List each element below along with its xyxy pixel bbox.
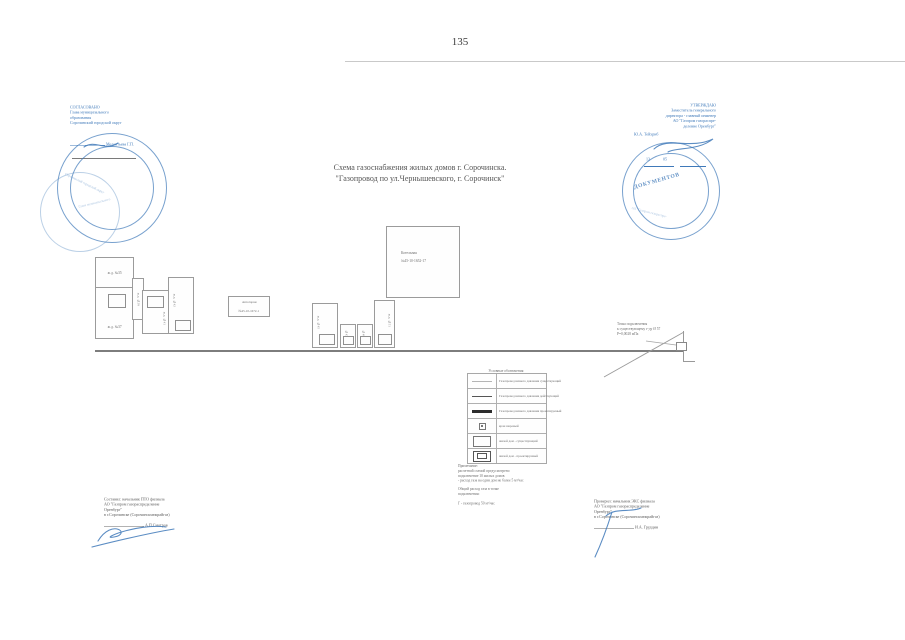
existing-gas-branch-line [683, 361, 695, 362]
building-boiler-house: Котельная №45-10-1652-17 [386, 226, 460, 298]
drawing-title: Схема газоснабжения жилых домов г. Сороч… [240, 162, 600, 184]
building-b-label: ж.д. №37 [107, 325, 121, 329]
building-mid-d-label: ж.д. №51 [387, 313, 391, 326]
building-b: ж.д. №37 [95, 287, 134, 339]
building-b-regulator-box [108, 294, 126, 308]
building-c-label: ж.д. №39 [136, 292, 140, 305]
leader-line-long [604, 332, 684, 377]
building-d: ж.д. №41 [142, 290, 170, 334]
building-garage: Автогараж №45-10-1672-1 [228, 296, 270, 317]
note-line: подключения: [458, 492, 524, 497]
notes-block: Примечание: расчетной схемой предусмотре… [458, 464, 524, 506]
legend-symbol-cell [468, 374, 496, 388]
drawing-title-line2: "Газопровод по ул.Чернышевского, г. Соро… [240, 173, 600, 184]
building-mid-a-regulator-box [319, 334, 335, 345]
note-line: - расход газа на один дом не более 5 м³/… [458, 479, 524, 484]
building-mid-d-regulator-box [378, 334, 392, 345]
page-number: 135 [438, 36, 482, 48]
building-mid-b-regulator-box [343, 336, 354, 345]
building-mid-a: ж.д. №45 [312, 303, 338, 348]
legend-label-cell: Газопровод низкого давления действующий [496, 389, 648, 403]
sign-right-line: в г.Сорочинске (Сорочинскмежрайгаз) [594, 515, 660, 520]
drawing-title-line1: Схема газоснабжения жилых домов г. Сороч… [240, 162, 600, 173]
legend-label: Газопровод низкого давления проектируемы… [499, 409, 561, 412]
garage-number: №45-10-1672-1 [239, 309, 260, 312]
legend-label: жилой дом - проектируемый [499, 454, 538, 457]
building-a-label: ж.д. №35 [107, 271, 121, 275]
building-e-label: ж.д. №43 [172, 293, 176, 306]
scanned-document-page: 135 СОГЛАСОВАНО Глава муниципального обр… [0, 0, 905, 640]
building-b-label-wrap: ж.д. №37 [96, 316, 133, 334]
building-e-regulator-box [175, 320, 191, 331]
legend-symbol-cell [468, 404, 496, 418]
connection-annotation: Точка подключения к существующему г-ду Ø… [617, 322, 660, 337]
legend-symbol-cell [468, 449, 496, 463]
connection-annotation-line3: Р=0,0028 мПа [617, 332, 660, 337]
round-seal-left-partial [40, 172, 120, 252]
gas-main-line [95, 350, 684, 352]
legend-label-cell: кран шаровый [496, 419, 548, 433]
header-rule [345, 61, 905, 62]
line-active-icon [472, 396, 492, 397]
legend-row: кран шаровый [468, 418, 546, 433]
overlay-lines [0, 0, 905, 640]
building-mid-c: №49 [357, 324, 373, 348]
legend-symbol-cell [468, 389, 496, 403]
sign-left-signature-line [104, 523, 144, 527]
building-a: ж.д. №35 [95, 257, 134, 289]
note-line: Г - газопровод 50 м³/час [458, 501, 524, 506]
building-mid-d: ж.д. №51 [374, 300, 395, 348]
sign-left-name: А.П.Смотров [145, 523, 168, 528]
garage-label: Автогараж [242, 301, 257, 304]
legend-row: Газопровод низкого давления действующий [468, 388, 546, 403]
stamp-right-name: Ю.А. Тейхриб [634, 132, 716, 137]
handwritten-signature-left-tail [92, 529, 174, 547]
building-d-label: ж.д. №41 [162, 311, 166, 324]
building-mid-a-label: ж.д. №45 [316, 315, 320, 328]
legend-symbol-cell [468, 434, 496, 448]
legend-row: Газопровод низкого давления проектируемы… [468, 403, 546, 418]
legend-label: Газопровод низкого давления действующий [499, 394, 559, 397]
legend-row: жилой дом - проектируемый [468, 448, 546, 463]
stamp-left-line: Сорочинский городской округ [70, 121, 134, 126]
legend-label-cell: Газопровод низкого давления существующий [496, 374, 654, 388]
round-seal-right-inner [633, 153, 709, 229]
building-mid-b: №47 [340, 324, 356, 348]
legend-label: жилой дом - существующий [499, 439, 538, 442]
house-projected-icon [473, 451, 491, 462]
sign-left-line: в г.Сорочинске (Сорочинскмежрайгаз) [104, 513, 170, 518]
legend-box: Газопровод низкого давления существующий… [467, 373, 547, 464]
legend-label: Газопровод низкого давления существующий [499, 379, 561, 382]
connection-point-box [676, 342, 687, 351]
signature-block-left: Составил: начальник ПТО филиала АО "Газп… [104, 497, 170, 528]
line-projected-icon [472, 410, 492, 413]
legend-label-cell: жилой дом - существующий [496, 434, 595, 448]
legend-row: Газопровод низкого давления существующий [468, 374, 546, 388]
building-mid-c-regulator-box [360, 336, 371, 345]
handwritten-signature-left [98, 526, 166, 541]
building-mid-d-label-wrap: ж.д. №51 [384, 303, 394, 337]
legend-label-cell: жилой дом - проектируемый [496, 449, 596, 463]
sign-right-signature-line [594, 525, 634, 529]
leader-line-short [646, 341, 676, 345]
boiler-house-label: Котельная [401, 251, 426, 256]
signature-block-right: Проверил: начальник ЭКС филиала АО "Газп… [594, 499, 660, 530]
building-e-label-wrap: ж.д. №43 [169, 280, 179, 320]
stamp-right-line: деление Оренбург" [634, 124, 716, 129]
legend-label-cell: Газопровод низкого давления проектируемы… [496, 404, 655, 418]
line-existing-icon [472, 381, 492, 382]
legend-symbol-cell [468, 419, 496, 433]
sign-right-name: И.А. Грудцин [635, 525, 658, 530]
house-existing-icon [473, 436, 491, 447]
boiler-house-number: №45-10-1652-17 [401, 259, 426, 264]
valve-icon [479, 423, 486, 430]
building-e: ж.д. №43 [168, 277, 194, 334]
legend-label: кран шаровый [499, 424, 519, 427]
legend-row: жилой дом - существующий [468, 433, 546, 448]
